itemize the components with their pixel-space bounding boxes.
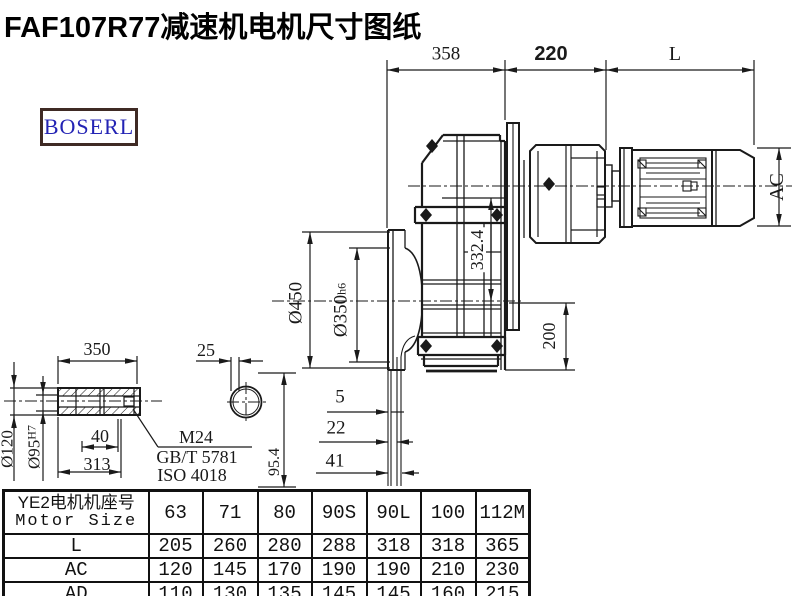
table-header-cell: 100: [421, 491, 476, 535]
dim-label-313: 313: [84, 455, 111, 473]
dia95-suffix: H7: [25, 425, 39, 440]
dim-label-358: 358: [432, 45, 461, 64]
center-lines: [4, 186, 792, 422]
table-header-cell: 71: [203, 491, 258, 535]
dim-label-40: 40: [91, 427, 109, 445]
table-header-cell: 63: [149, 491, 203, 535]
table-cell: 190: [367, 558, 421, 582]
table-cell: 145: [312, 582, 367, 596]
dim-label-95-4: 95.4: [267, 448, 283, 476]
header-line1: YE2电机机座号: [5, 494, 148, 513]
standard-label-iso: ISO 4018: [157, 466, 227, 484]
table-cell: 230: [476, 558, 530, 582]
row-label: L: [4, 534, 149, 558]
table-header-cell: 90S: [312, 491, 367, 535]
table-cell: 365: [476, 534, 530, 558]
dim-label-350: 350: [84, 340, 111, 358]
dim-label-dia450: Ø450: [287, 282, 306, 324]
table-header-motor-size: YE2电机机座号 Motor Size: [4, 491, 149, 535]
table-cell: 318: [367, 534, 421, 558]
table-row-AC: AC 120 145 170 190 190 210 230: [4, 558, 530, 582]
dim-label-22: 22: [327, 419, 346, 438]
table-cell: 110: [149, 582, 203, 596]
table-header-cell: 80: [258, 491, 312, 535]
row-label: AC: [4, 558, 149, 582]
dim-label-dia95h7: Ø95H7: [26, 425, 43, 469]
table-row-L: L 205 260 280 288 318 318 365: [4, 534, 530, 558]
table-cell: 190: [312, 558, 367, 582]
dim-label-332-4: 332.4: [468, 228, 486, 273]
table-cell: 215: [476, 582, 530, 596]
motor-outline: [620, 148, 754, 227]
table-header-cell: 112M: [476, 491, 530, 535]
drawing-page: FAF107R77减速机电机尺寸图纸 BOSERL: [0, 0, 800, 596]
dia350-suffix: h6: [335, 283, 349, 295]
table-cell: 288: [312, 534, 367, 558]
motor-size-table: YE2电机机座号 Motor Size 63 71 80 90S 90L 100…: [2, 489, 531, 596]
table-cell: 318: [421, 534, 476, 558]
table-cell: 170: [258, 558, 312, 582]
dia95-main: Ø95: [25, 440, 44, 469]
table-cell: 135: [258, 582, 312, 596]
dim-label-AC: AC: [767, 173, 787, 201]
header-line2: Motor Size: [5, 513, 148, 532]
motor-adapter: [507, 123, 620, 330]
dim-label-25: 25: [197, 341, 215, 359]
table-cell: 210: [421, 558, 476, 582]
dim-label-41: 41: [326, 452, 345, 471]
output-flange: [388, 230, 422, 486]
dim-label-dia350h6: Ø350h6: [332, 283, 351, 337]
table-header-cell: 90L: [367, 491, 421, 535]
thread-label-M24: M24: [179, 428, 213, 446]
standard-label-gb: GB/T 5781: [156, 448, 237, 466]
table-cell: 145: [367, 582, 421, 596]
table-cell: 145: [203, 558, 258, 582]
dia350-main: Ø350: [331, 295, 352, 337]
table-cell: 160: [421, 582, 476, 596]
table-cell: 205: [149, 534, 203, 558]
table-cell: 260: [203, 534, 258, 558]
table-row-AD: AD 110 130 135 145 145 160 215: [4, 582, 530, 596]
dim-label-L: L: [669, 44, 681, 64]
dim-label-220: 220: [534, 44, 567, 64]
dim-label-dia120: Ø120: [0, 430, 16, 468]
dim-label-5: 5: [335, 388, 345, 407]
table-cell: 130: [203, 582, 258, 596]
table-header-row: YE2电机机座号 Motor Size 63 71 80 90S 90L 100…: [4, 491, 530, 535]
table-cell: 120: [149, 558, 203, 582]
fan-cover: [712, 150, 754, 226]
row-label: AD: [4, 582, 149, 596]
dim-label-200: 200: [540, 323, 558, 350]
table-cell: 280: [258, 534, 312, 558]
